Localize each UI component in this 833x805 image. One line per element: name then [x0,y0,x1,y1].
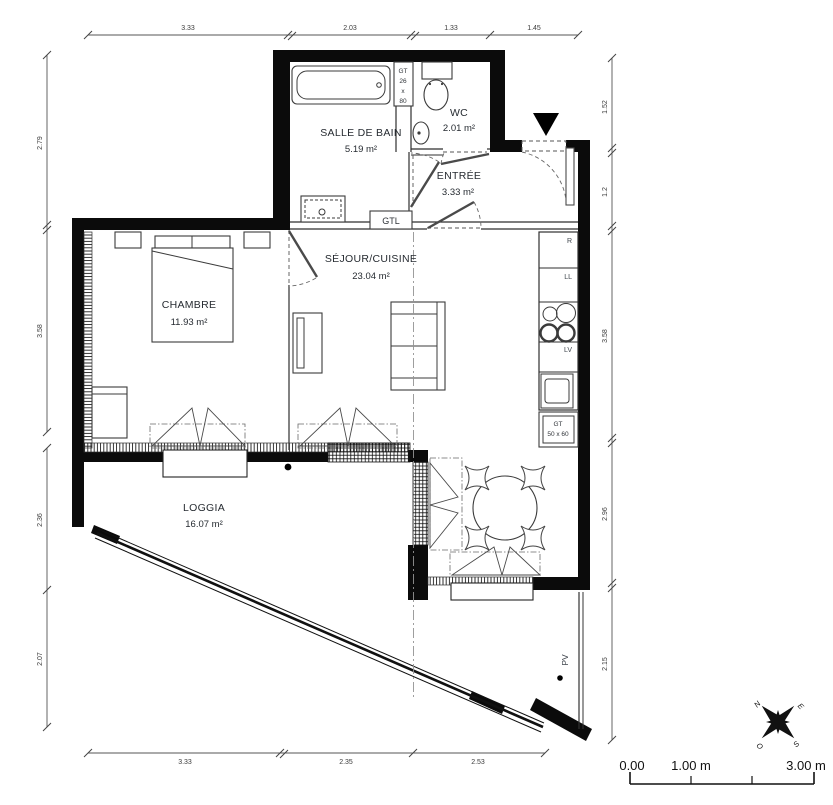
nightstand-left [115,232,141,248]
dim-top-1: 3.33 [181,25,195,32]
pv-glass-panel [579,592,583,729]
chambre-furniture [92,232,270,438]
point-marker-1 [285,464,292,471]
room-label-sejour-cuisine: SÉJOUR/CUISINE 23.04 m² [325,252,417,282]
dim-right-2: 1.2 [602,187,609,197]
dim-top-3: 1.33 [444,25,458,32]
svg-text:16.07 m²: 16.07 m² [185,519,223,530]
svg-text:LOGGIA: LOGGIA [183,502,225,514]
sejour-door [428,202,481,228]
sofa [391,302,445,390]
compass-e: E [796,701,807,712]
dining-west-window-opening [430,458,462,550]
tv-unit [293,313,322,373]
dimension-top: 3.33 2.03 1.33 1.45 [84,25,582,40]
point-marker-2 [557,675,563,681]
nightstand-right [244,232,270,248]
svg-text:WC: WC [450,107,468,119]
dishwasher-label: LV [564,347,572,354]
bathtub [292,66,390,104]
dresser [92,387,127,438]
scale-3: 3.00 m [786,758,826,773]
svg-text:SÉJOUR/CUISINE: SÉJOUR/CUISINE [325,252,417,265]
wc-door [441,153,489,164]
toilet [422,62,452,110]
gt-column: GT 26 x 80 [394,62,413,106]
pv-label: PV [560,654,570,666]
chambre-door [289,231,317,286]
gt-column-label-1: GT [398,68,407,75]
dim-right-1: 1.52 [602,100,609,114]
dim-bottom-3: 2.53 [471,759,485,766]
exterior-walls [72,50,592,741]
svg-text:CHAMBRE: CHAMBRE [162,299,217,311]
gtl-box: GTL [370,211,412,229]
compass-o: O [755,741,766,752]
room-label-salle-de-bain: SALLE DE BAIN 5.19 m² [320,127,402,155]
dim-bottom-1: 3.33 [178,759,192,766]
compass-rose: N E S O [745,689,810,754]
compass-s: S [791,739,801,749]
chambre-window-opening [150,408,245,448]
dim-left-3: 2.36 [37,513,44,527]
dining-south-window-opening [450,547,540,575]
sejour-window [451,583,533,600]
fridge-label: R [567,238,572,245]
floor-plan-page: GT 26 x 80 GTL [0,0,833,800]
gt-floor-box: GT 50 x 60 [539,412,578,447]
dimension-right: 1.52 1.2 3.58 2.96 2.15 [602,54,616,744]
sink [541,374,573,408]
kitchen-counter: R LL LV GT 50 x 60 [539,232,578,447]
svg-text:23.04 m²: 23.04 m² [352,271,390,282]
dim-right-5: 2.15 [602,657,609,671]
salle-de-bain-door [411,153,439,207]
entrance-door [522,141,574,205]
chambre-window [163,450,247,477]
svg-text:ENTRÉE: ENTRÉE [437,169,481,182]
dining-table [465,466,545,550]
dimension-bottom: 3.33 2.35 2.53 [84,749,549,766]
gtl-label: GTL [382,216,400,226]
svg-text:3.33 m²: 3.33 m² [442,187,474,198]
dim-top-2: 2.03 [343,25,357,32]
gt-column-label-2: 26 [399,78,407,85]
floor-plan-drawing: GT 26 x 80 GTL [0,0,833,800]
svg-text:2.01 m²: 2.01 m² [443,123,475,134]
scale-1: 1.00 m [671,758,711,773]
hob [541,304,576,342]
dim-left-4: 2.07 [37,652,44,666]
dimension-left: 2.79 3.58 2.36 2.07 [37,51,51,731]
svg-text:11.93 m²: 11.93 m² [171,317,208,328]
room-label-entree: ENTRÉE 3.33 m² [437,169,481,198]
entrance-marker [533,113,559,136]
wc-washbasin [413,122,429,144]
gt-floor-label-2: 50 x 60 [547,431,569,438]
dim-bottom-2: 2.35 [339,759,353,766]
compass-n: N [752,699,763,710]
dim-left-1: 2.79 [37,136,44,150]
washer-label: LL [564,274,572,281]
gt-column-label-4: 80 [399,98,407,105]
room-label-loggia: LOGGIA 16.07 m² [183,502,225,530]
vanity-basin [301,196,345,222]
gt-floor-label-1: GT [553,421,562,428]
room-label-wc: WC 2.01 m² [443,107,475,134]
dim-left-2: 3.58 [37,324,44,338]
wall-hatching [84,232,533,585]
dim-right-3: 3.58 [602,329,609,343]
svg-text:5.19 m²: 5.19 m² [345,144,377,155]
sejour-window-opening [298,408,397,448]
svg-text:SALLE DE BAIN: SALLE DE BAIN [320,127,402,139]
dim-right-4: 2.96 [602,507,609,521]
scale-0: 0.00 [619,758,644,773]
dim-top-4: 1.45 [527,25,541,32]
scale-bar: 0.00 1.00 m 3.00 m [619,758,826,784]
